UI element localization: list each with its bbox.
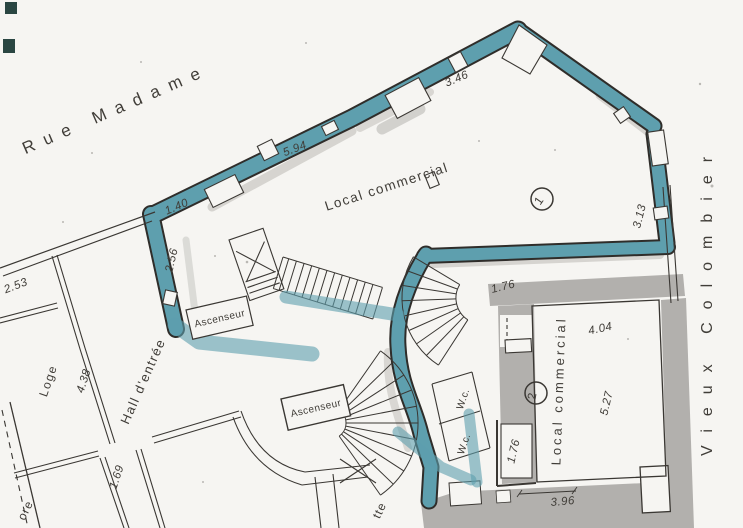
scanned-floor-plan: Ascenseur Ascenseur 1 2 Rue Madame Vieux… [0, 0, 743, 528]
bottom-wall-small-notch [496, 490, 511, 503]
corner-mark-bottom [3, 39, 15, 53]
window [653, 206, 669, 220]
local2-door-leaf [505, 339, 532, 353]
paper-background [0, 0, 743, 528]
street-label-vieux-colombier: Vieux Colombier [699, 144, 716, 456]
window [163, 290, 178, 306]
floor-plan-canvas: Ascenseur Ascenseur 1 2 Rue Madame Vieux… [0, 0, 743, 528]
corner-mark-top [5, 2, 17, 14]
dim-facade-bottom: 3.96 [550, 495, 575, 509]
